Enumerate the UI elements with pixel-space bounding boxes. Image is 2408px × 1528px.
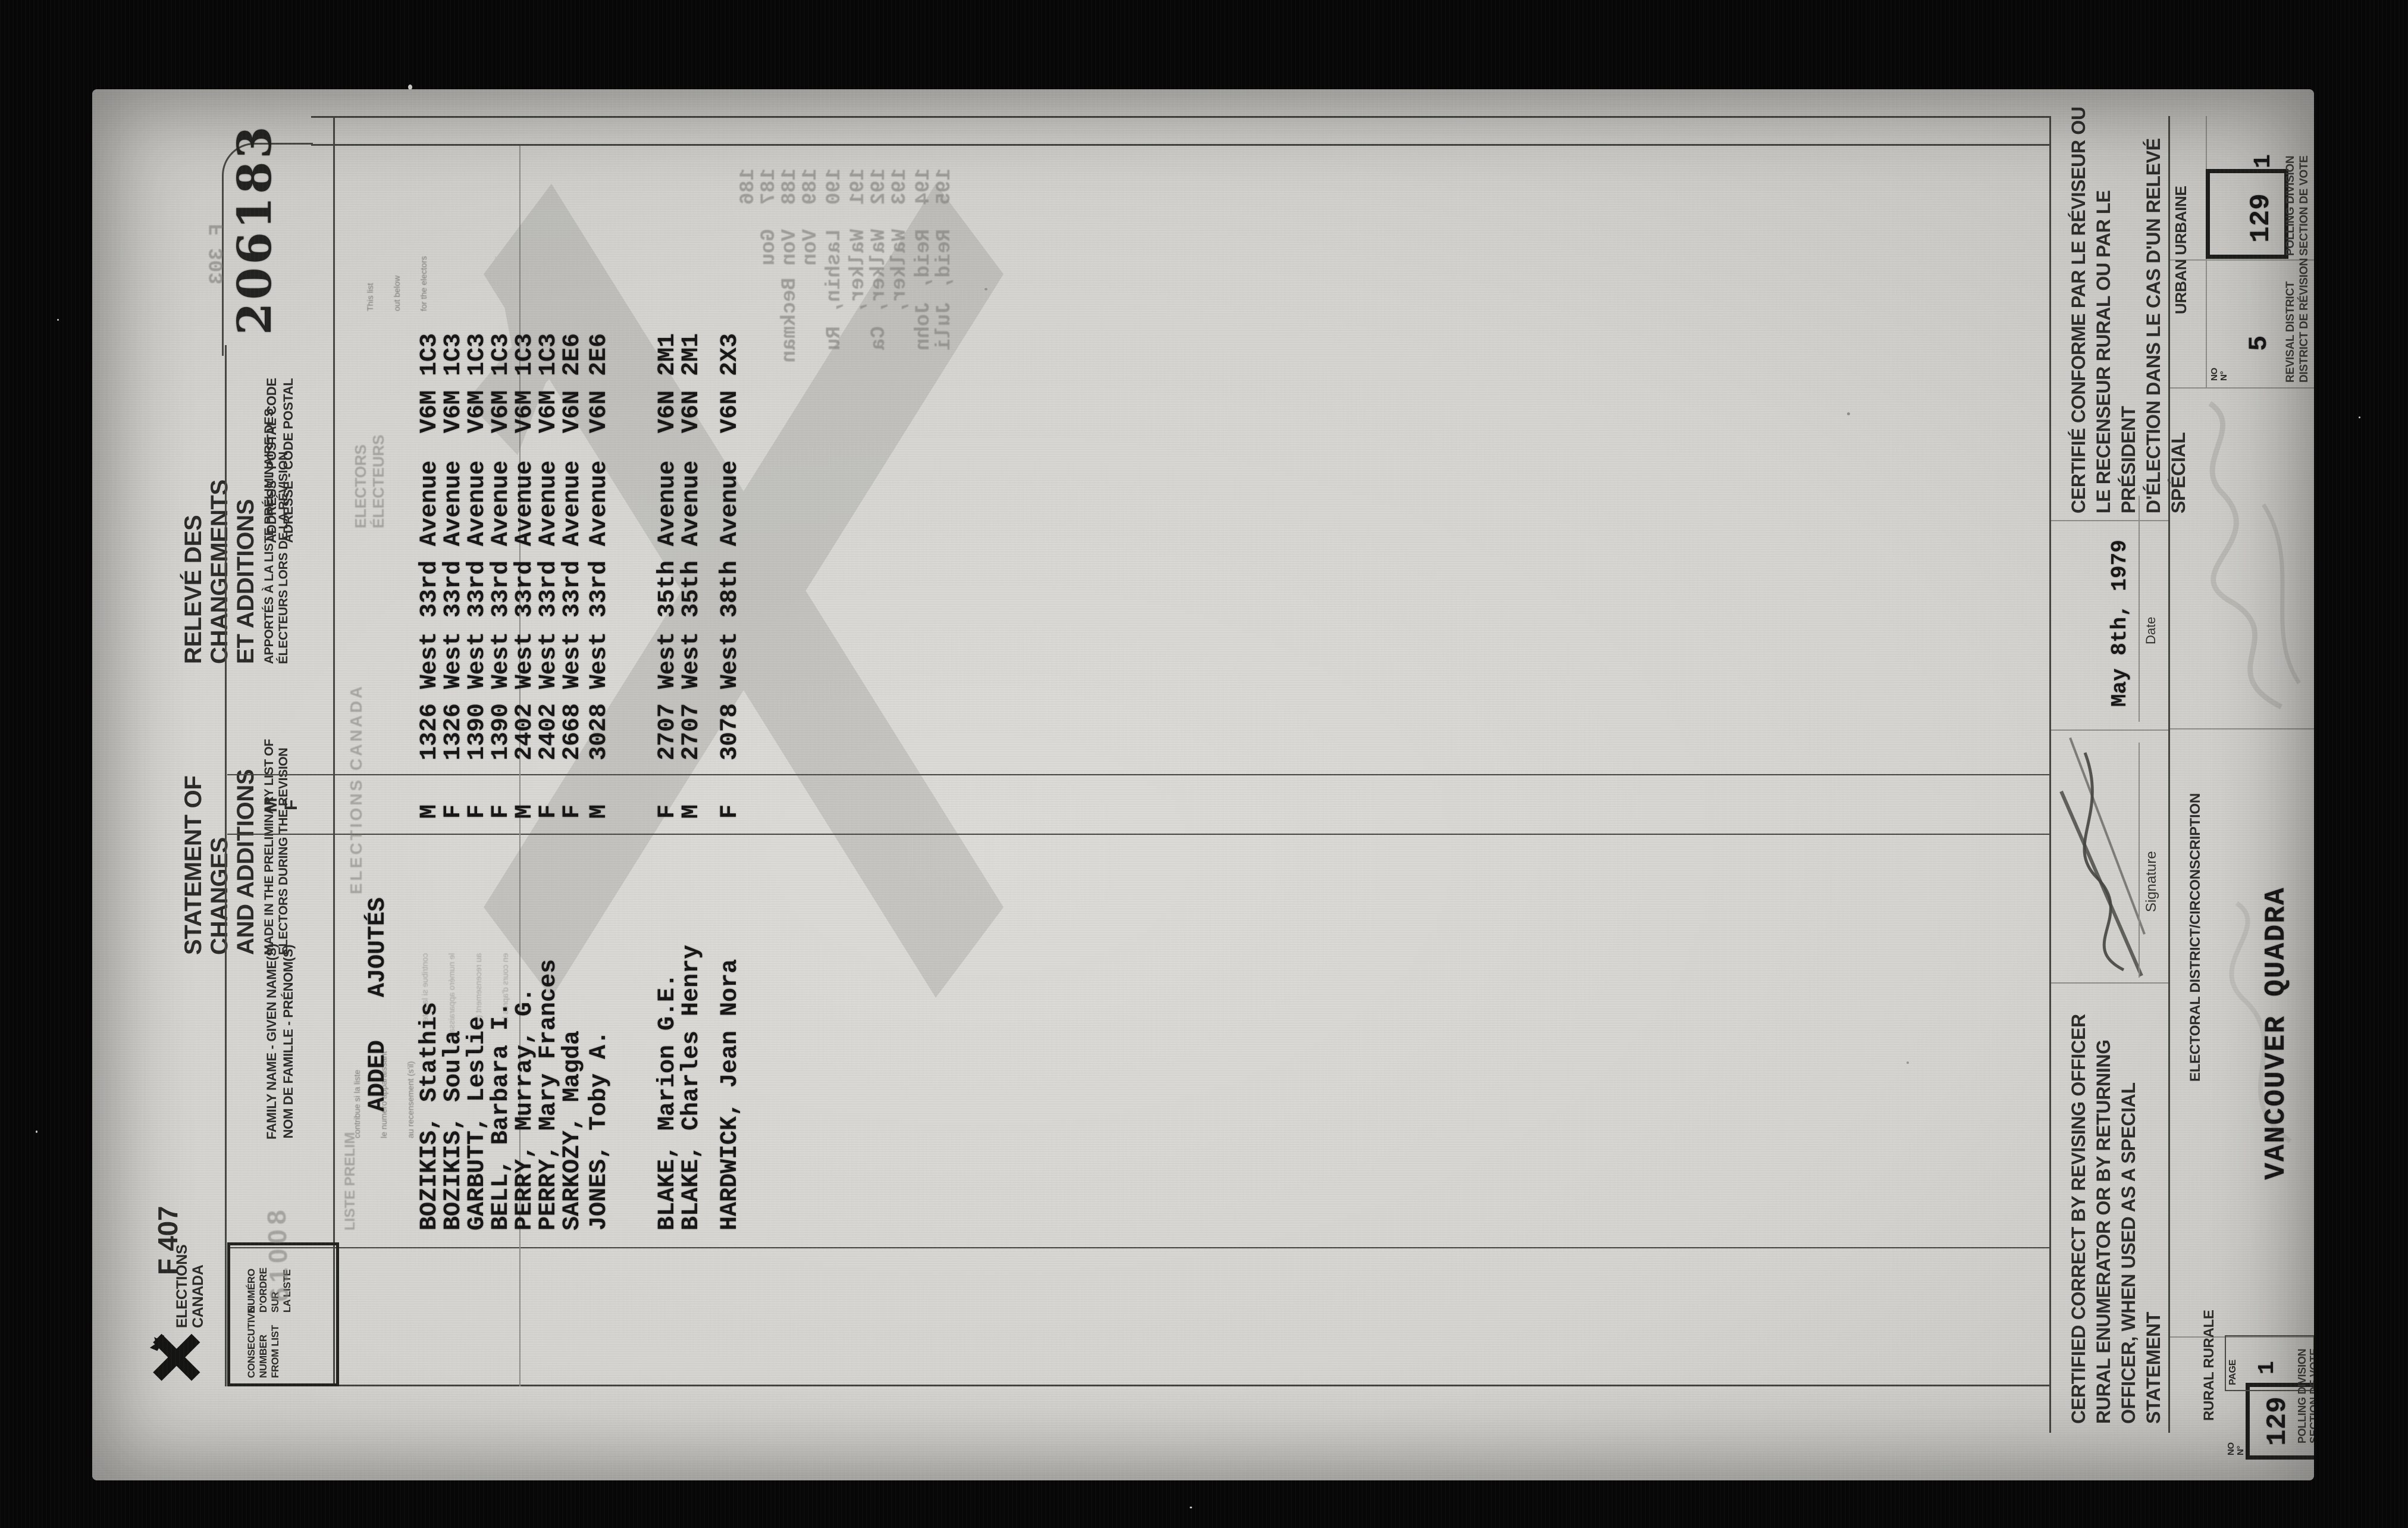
electoral-district-label: ELECTORAL DISTRICT/CIRCONSCRIPTION (2187, 793, 2204, 1082)
table-top-border (225, 345, 227, 1386)
consecutive-header-en: CONSECUTIVE NUMBER FROM LIST (246, 1317, 281, 1378)
date-label: Date (2143, 617, 2159, 644)
address-column-header: ADDRESS - POSTAL CODE ADRESSE - CODE POS… (264, 146, 297, 775)
faint-number-stamp: 61008 (262, 1205, 295, 1302)
header-bottom-rule (333, 116, 335, 1386)
cert-fr-line: LE RECENSEUR RURAL OU PAR LE PRÉSIDENT (2091, 89, 2141, 513)
elections-canada-x-logo-icon (149, 1332, 202, 1385)
signature-line (2139, 743, 2140, 978)
document-page: ELECTIONS CANADA F 407 STATEMENT OF CHAN… (92, 89, 2314, 1480)
dust-speck (36, 1131, 37, 1133)
elector-address: 3078 West 38th Avenue (717, 461, 744, 760)
urban-urbaine-label: URBAN URBAINE (2172, 186, 2190, 314)
bleed-line: 192 Walker, Ca (868, 168, 890, 350)
certification-en: CERTIFIED CORRECT BY REVISING OFFICER RU… (2066, 1014, 2166, 1424)
polling-division-label-left: POLLING DIVISION SECTION DE VOTE (2296, 1348, 2314, 1444)
faint-elections-canada-stamp: ELECTIONS CANADA (347, 684, 366, 894)
elector-address: 1390 West 33rd Avenue (464, 461, 491, 760)
paper-speck (984, 288, 987, 290)
bleed-fine-line: le numéro apparaissant (447, 953, 456, 1040)
footer-divider (2170, 728, 2314, 729)
cert-en-line: RURAL ENUMERATOR OR BY RETURNING (2091, 1014, 2116, 1424)
sex-column-header: M F (261, 775, 302, 835)
elector-name: BELL, Barbara I. (488, 1002, 515, 1230)
fine-print-line: for the electors (419, 256, 428, 311)
bleedthrough-handwriting (2174, 397, 2311, 719)
elector-name: SARKOZY, Magda (559, 1031, 586, 1230)
bleed-line: 194 Reid, John (913, 168, 935, 350)
elector-sex: M (512, 804, 538, 819)
rural-rurale-label: RURAL RURALE (2201, 1310, 2218, 1421)
sex-header-m: M (261, 775, 281, 835)
no-label-fr: N° (2236, 1442, 2246, 1455)
revisal-district-label: REVISAL DISTRICT DISTRICT DE RÉVISION (2284, 258, 2311, 383)
polling-page-value: 1 (2250, 154, 2277, 168)
consecutive-en-line: NUMBER (258, 1317, 269, 1378)
fine-print-line: This list (366, 256, 375, 311)
elector-address: 2402 West 33rd Avenue (535, 461, 562, 760)
cert-en-line: STATEMENT (2141, 1014, 2166, 1424)
elector-postal: V6N 2M1 (678, 333, 705, 433)
elector-postal: V6M 1C3 (535, 333, 562, 433)
table-right-border-inner (311, 144, 2049, 146)
cert-en-line: OFFICER, WHEN USED AS A SPECIAL (2116, 1014, 2141, 1424)
paper-speck (1847, 412, 1850, 415)
cert-divider (2051, 520, 2168, 521)
elector-sex: F (440, 804, 467, 819)
elector-sex: F (654, 804, 681, 819)
title-en-line2: AND ADDITIONS (233, 675, 259, 955)
bleed-line: 189 Von (800, 168, 822, 265)
no-label-en: NO (2227, 1442, 2236, 1455)
table-left-border (227, 1385, 2049, 1386)
fine-print-line: contribue si la liste (353, 1051, 362, 1138)
polling-number-value: 129 (2246, 193, 2277, 243)
elector-sex: F (488, 804, 515, 819)
elector-name: BOZIKIS, Stathis (416, 1002, 443, 1230)
elector-sex: M (586, 804, 613, 819)
faint-electors-en: ELECTORS (352, 435, 369, 528)
faint-liste-stamp: LISTE PRELIM (342, 1132, 359, 1230)
signature-label: Signature (2143, 851, 2160, 912)
consecutive-en-line: CONSECUTIVE (246, 1317, 258, 1378)
scanned-photo: ELECTIONS CANADA F 407 STATEMENT OF CHAN… (0, 0, 2408, 1528)
elector-postal: V6N 2X3 (717, 333, 744, 433)
revisal-label-fr: DISTRICT DE RÉVISION (2297, 258, 2311, 383)
bleedthrough-form-number: F 303 (206, 224, 229, 284)
bleed-line: 187 Gou (758, 168, 780, 265)
column-divider (227, 1247, 2049, 1248)
elector-sex: M (416, 804, 443, 819)
elector-sex: F (559, 804, 586, 819)
elector-postal: V6N 2M1 (654, 333, 681, 433)
consecutive-en-line: FROM LIST (269, 1317, 281, 1378)
number-label: NO N° (2210, 368, 2229, 381)
bleed-line: 191 Walker, (848, 168, 869, 314)
elector-sex: F (535, 804, 562, 819)
cert-en-line: CERTIFIED CORRECT BY REVISING OFFICER (2066, 1014, 2091, 1424)
dust-speck (2359, 417, 2360, 418)
section-heading-added: ADDED AJOUTÉS (365, 897, 391, 1111)
polling-label-fr: SECTION DE VOTE (2308, 1348, 2314, 1444)
elector-name: PERRY, Murray, G. (512, 988, 538, 1230)
bleed-line: 186 (738, 168, 759, 205)
fine-print-en: This list out below for the electors (348, 256, 446, 311)
elector-name: BOZIKIS, Soula (440, 1031, 467, 1230)
date-value: May 8th, 1979 (2108, 540, 2132, 707)
bleed-line: 190 Lashin, Ru (824, 168, 845, 350)
elector-postal: V6M 1C3 (440, 333, 467, 433)
elector-name: PERRY, Mary Frances (535, 959, 562, 1230)
bleedthrough-handwriting (2207, 897, 2308, 1147)
elector-address: 1326 West 33rd Avenue (440, 461, 467, 760)
revisal-label-en: REVISAL DISTRICT (2284, 258, 2297, 383)
consecutive-fr-line: NUMÉRO (246, 1252, 258, 1313)
table-right-border-outer (311, 116, 2049, 118)
polling-label-en: POLLING DIVISION (2296, 1348, 2308, 1444)
elector-postal: V6M 1C3 (464, 333, 491, 433)
address-header-en: ADDRESS - POSTAL CODE (264, 146, 280, 775)
footer-top-border (2168, 116, 2170, 1433)
no-label-fr: N° (2219, 368, 2229, 381)
name-column-header: FAMILY NAME - GIVEN NAME(S) NOM DE FAMIL… (264, 835, 297, 1248)
elector-postal: V6M 1C3 (488, 333, 515, 433)
no-label-en: NO (2210, 368, 2219, 381)
elector-address: 1326 West 33rd Avenue (416, 461, 443, 760)
elector-name: HARDWICK, Jean Nora (717, 959, 744, 1230)
cert-fr-line: D'ÉLECTION DANS LE CAS D'UN RELEVÉ (2141, 89, 2166, 513)
elector-address: 2402 West 33rd Avenue (512, 461, 538, 760)
list-number-value: 129 (2262, 1397, 2293, 1446)
elector-sex: F (717, 804, 744, 819)
name-header-en: FAMILY NAME - GIVEN NAME(S) (264, 835, 280, 1248)
polling-label-en: POLLING DIVISION (2284, 155, 2297, 256)
elector-address: 2668 West 33rd Avenue (559, 461, 586, 760)
form-number: F 407 (152, 1206, 184, 1275)
elector-name: GARBUTT, Leslie (464, 1016, 491, 1230)
table-bottom-border (2049, 116, 2051, 1433)
elector-address: 2707 West 35th Avenue (654, 461, 681, 760)
cert-fr-line: CERTIFIÉ CONFORME PAR LE RÉVISEUR OU (2066, 89, 2091, 513)
number-label: NO N° (2227, 1442, 2246, 1455)
elector-postal: V6M 1C3 (512, 333, 538, 433)
elector-address: 2707 West 35th Avenue (678, 461, 705, 760)
footer-divider (2170, 387, 2314, 389)
bleed-line: 195 Reid, Juli (934, 168, 955, 350)
bleed-line: 193 Walker, (889, 168, 911, 314)
elector-name: BLAKE, Marion G.E. (654, 973, 681, 1230)
elector-address: 1390 West 33rd Avenue (488, 461, 515, 760)
dust-speck (1190, 1507, 1192, 1508)
date-line (2139, 496, 2140, 722)
page-value: 1 (2255, 1361, 2280, 1374)
polling-division-label-right: POLLING DIVISION SECTION DE VOTE (2284, 155, 2311, 256)
elector-sex: M (678, 804, 705, 819)
elector-postal: V6M 1C3 (416, 333, 443, 433)
title-fr-line2: ET ADDITIONS (233, 343, 259, 664)
paper-speck (1907, 1062, 1909, 1064)
bleed-line: 188 Von Beckman (779, 168, 801, 362)
name-header-fr: NOM DE FAMILLE - PRÉNOM(S) (280, 835, 297, 1248)
faint-electors-fr: ÉLECTEURS (369, 435, 387, 528)
dust-speck (57, 319, 59, 321)
fine-print-line: out below (393, 256, 402, 311)
elector-postal: V6N 2E6 (586, 333, 613, 433)
address-header-fr: ADRESSE - CODE POSTAL (280, 146, 297, 775)
sex-header-f: F (281, 775, 302, 835)
logo-word-canada: CANADA (190, 1245, 206, 1328)
page-label: PAGE (2228, 1360, 2238, 1385)
fine-print-line: au recensement (s'il) (406, 1051, 415, 1138)
elector-name: BLAKE, Charles Henry (678, 945, 705, 1230)
revisal-district-value: 5 (2244, 336, 2274, 351)
faint-electors-stamp: ELECTORS ÉLECTEURS (352, 435, 387, 528)
elector-address: 3028 West 33rd Avenue (586, 461, 613, 760)
elector-name: JONES, Toby A. (586, 1031, 613, 1230)
signature-scribble (2052, 726, 2147, 988)
polling-label-fr: SECTION DE VOTE (2297, 155, 2311, 256)
elector-sex: F (464, 804, 491, 819)
elector-postal: V6N 2E6 (559, 333, 586, 433)
